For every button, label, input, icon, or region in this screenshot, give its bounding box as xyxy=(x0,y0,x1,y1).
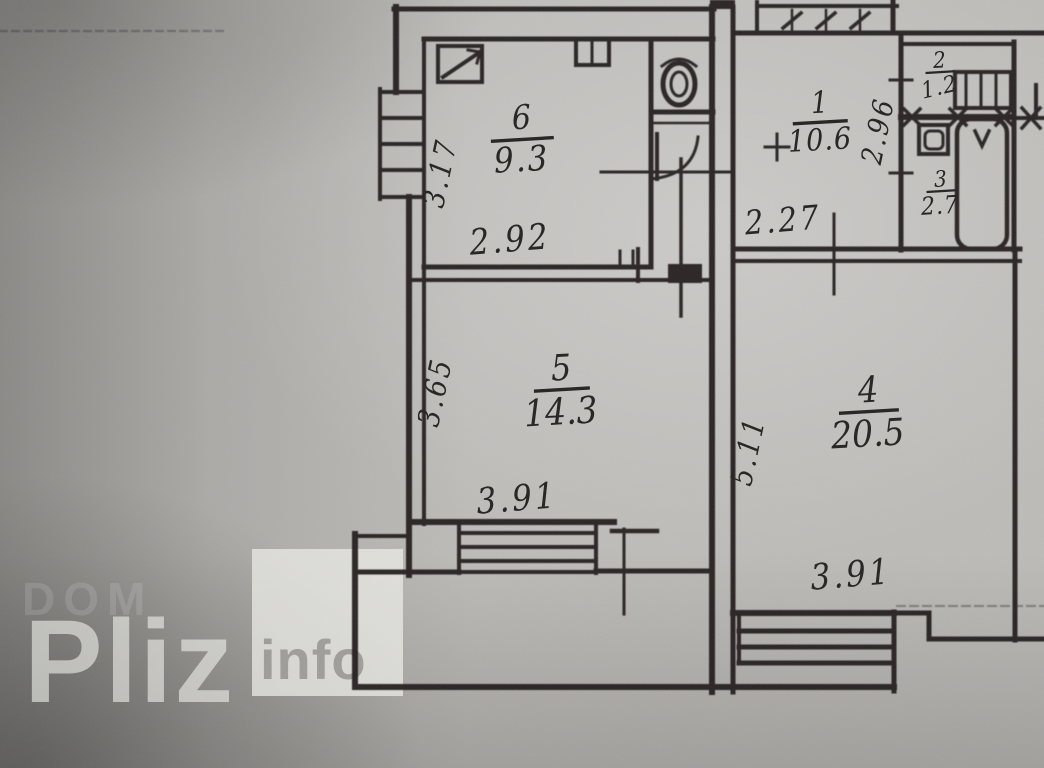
room-4-area: 20.5 xyxy=(830,409,905,457)
dimension-room4-width: 3.91 xyxy=(798,550,904,600)
wall-recess-icon xyxy=(576,39,609,65)
room-4-number: 4 xyxy=(837,370,899,415)
room-5-number: 5 xyxy=(532,348,590,392)
room-2-label: 2 1.2 xyxy=(910,50,968,99)
room-5-label: 5 14.3 xyxy=(513,352,609,431)
room-3-number: 3 xyxy=(925,167,955,194)
balcony-railing-room4 xyxy=(739,613,893,663)
room-6-label: 6 9.3 xyxy=(480,104,564,178)
toilet-icon xyxy=(662,59,696,105)
room4-walls xyxy=(733,249,1044,691)
balcony-railing-room5 xyxy=(459,527,712,573)
room-5-area: 14.3 xyxy=(523,387,598,435)
dimension-room1-width: 2.27 xyxy=(734,197,832,244)
central-dividing-wall xyxy=(710,0,735,692)
room-4-label: 4 20.5 xyxy=(818,374,918,453)
floorplan-scan: DOM info Pliz xyxy=(0,0,1044,768)
room-3-area: 2.7 xyxy=(920,192,959,222)
balcony-railing-left xyxy=(380,89,423,199)
vent-shaft-icon xyxy=(438,46,482,82)
room-2-area: 1.2 xyxy=(919,70,960,104)
room-1-number: 1 xyxy=(792,87,849,126)
washbasin-icon xyxy=(919,125,948,154)
dimension-room6-width: 2.92 xyxy=(454,215,566,265)
watermark-brand: Pliz xyxy=(24,603,235,721)
room-3-label: 3 2.7 xyxy=(911,169,969,219)
top-walls-right xyxy=(733,0,1044,33)
dimension-room5-width: 3.91 xyxy=(464,474,570,524)
room-6-number: 6 xyxy=(490,100,555,142)
room-1-area: 10.6 xyxy=(787,121,853,159)
room-6-area: 9.3 xyxy=(493,138,550,182)
room-1-label: 1 10.6 xyxy=(777,90,863,156)
